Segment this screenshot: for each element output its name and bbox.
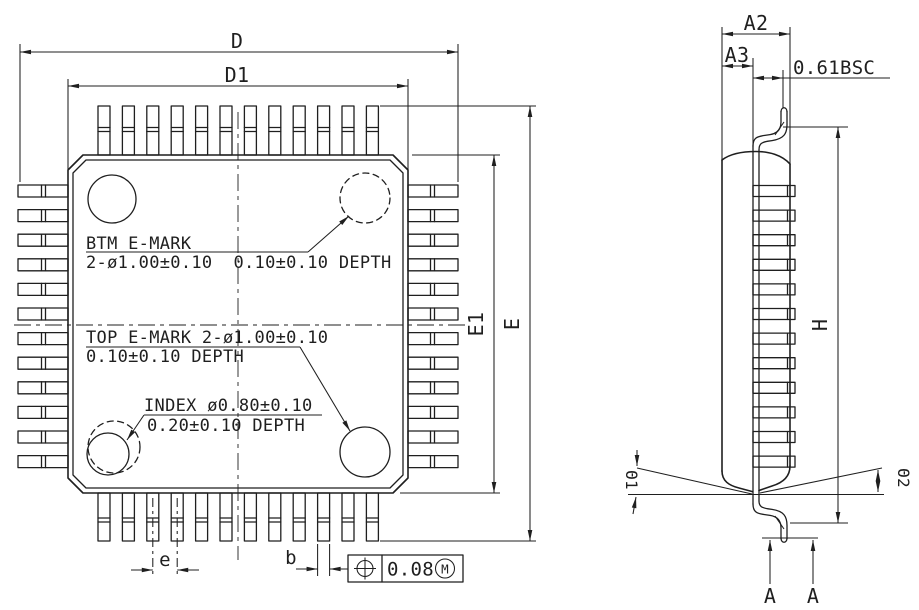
mmc-modifier-icon: M <box>436 559 455 578</box>
dim-lead-offset: 0.61BSC <box>753 57 890 108</box>
dim-label-d: D <box>231 29 243 53</box>
dim-label-theta1: Θ1 <box>622 470 641 490</box>
index-mark-circle <box>87 433 129 475</box>
bottom-right-emark-circle <box>340 427 390 477</box>
mechanical-drawing-page: BTM E-MARK 2-ø1.00±0.10 0.10±0.10 DEPTH … <box>0 0 919 610</box>
pin-row-left <box>18 185 68 468</box>
tolerance-value: 0.08 <box>387 559 434 581</box>
datum-a: A A <box>762 538 819 608</box>
dim-label-d1: D1 <box>225 63 250 87</box>
side-body-outline <box>722 152 790 492</box>
btm-emark-text-line2: 2-ø1.00±0.10 0.10±0.10 DEPTH <box>86 253 392 273</box>
dim-a2: A2 <box>722 11 790 164</box>
dim-a3: A3 <box>722 43 753 150</box>
side-leads <box>753 108 787 543</box>
dim-e1: E1 <box>400 155 500 493</box>
dim-label-a3: A3 <box>725 43 750 67</box>
tolerance-frame: 0.08 M <box>348 555 463 582</box>
qfp-package-drawing: BTM E-MARK 2-ø1.00±0.10 0.10±0.10 DEPTH … <box>0 0 919 610</box>
dim-label-a2: A2 <box>744 11 769 35</box>
btm-emark-leader <box>308 216 349 252</box>
dim-label-e1: E1 <box>464 312 488 337</box>
top-left-emark-circle <box>88 175 136 223</box>
index-annotation: INDEX ø0.80±0.10 0.20±0.10 DEPTH <box>127 396 322 440</box>
datum-a-label-right: A <box>807 584 819 608</box>
top-emark-text-line1: TOP E-MARK 2-ø1.00±0.10 <box>86 328 328 348</box>
pin-row-right <box>408 185 458 468</box>
index-leader <box>127 415 144 440</box>
dim-h: H <box>783 127 848 523</box>
top-right-emark-circle-hidden <box>340 173 390 223</box>
dim-pitch-e: e <box>131 498 199 578</box>
bottom-left-emark-circle-hidden <box>88 421 140 473</box>
btm-emark-annotation: BTM E-MARK 2-ø1.00±0.10 0.10±0.10 DEPTH <box>86 216 392 273</box>
top-emark-text-line2: 0.10±0.10 DEPTH <box>86 347 244 367</box>
btm-emark-text-line1: BTM E-MARK <box>86 234 192 254</box>
dim-label-h: H <box>808 319 832 331</box>
bottom-lead-tick <box>775 516 784 529</box>
dim-label-e: E <box>500 318 524 330</box>
front-view: BTM E-MARK 2-ø1.00±0.10 0.10±0.10 DEPTH … <box>14 29 536 582</box>
tolerance-modifier: M <box>441 562 449 577</box>
top-lead-tick <box>775 122 784 135</box>
index-text-line2: 0.20±0.10 DEPTH <box>147 416 305 436</box>
dim-label-b: b <box>285 547 297 569</box>
true-position-symbol-icon <box>354 558 376 580</box>
top-emark-leader <box>300 347 350 431</box>
dim-label-lead-offset: 0.61BSC <box>793 57 875 79</box>
index-text-line1: INDEX ø0.80±0.10 <box>144 396 313 416</box>
datum-a-label-left: A <box>764 584 776 608</box>
side-view: A2 A3 0.61BSC H Θ1 <box>622 11 913 608</box>
dim-label-pitch: e <box>159 549 171 571</box>
dim-b: b <box>285 544 348 576</box>
dim-label-theta2: Θ2 <box>894 468 913 488</box>
